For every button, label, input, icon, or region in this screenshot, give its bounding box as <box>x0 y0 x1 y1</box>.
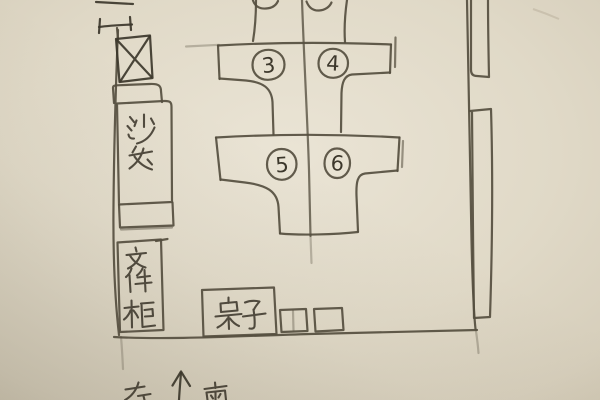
compass-left-char: 左 <box>127 379 147 400</box>
cabinet-label: 文件柜 <box>110 271 170 295</box>
cluster56-right-tick <box>402 141 403 167</box>
cluster34-right-tick <box>395 38 396 68</box>
desk-number-6: 6 <box>330 151 345 176</box>
desk-number-3: 3 <box>261 53 277 78</box>
floor-plan-sketch: 沙发 文件柜 3 4 <box>0 0 600 400</box>
floor-plan-photo: 沙发 文件柜 3 4 <box>0 0 600 400</box>
paper-shading <box>0 0 600 400</box>
table-label: 桌子 <box>220 299 260 323</box>
stool-1-inner-line <box>293 311 294 330</box>
desk-number-5: 5 <box>275 153 290 178</box>
desk-center-divider-faint <box>311 236 312 263</box>
cluster34-left-edge <box>218 46 220 80</box>
desk-number-4: 4 <box>326 51 341 76</box>
cluster34-right-edge <box>390 45 391 74</box>
door-post <box>117 28 118 39</box>
sofa-label: 沙发 <box>121 131 161 155</box>
compass-south-char: 南 <box>206 379 226 400</box>
